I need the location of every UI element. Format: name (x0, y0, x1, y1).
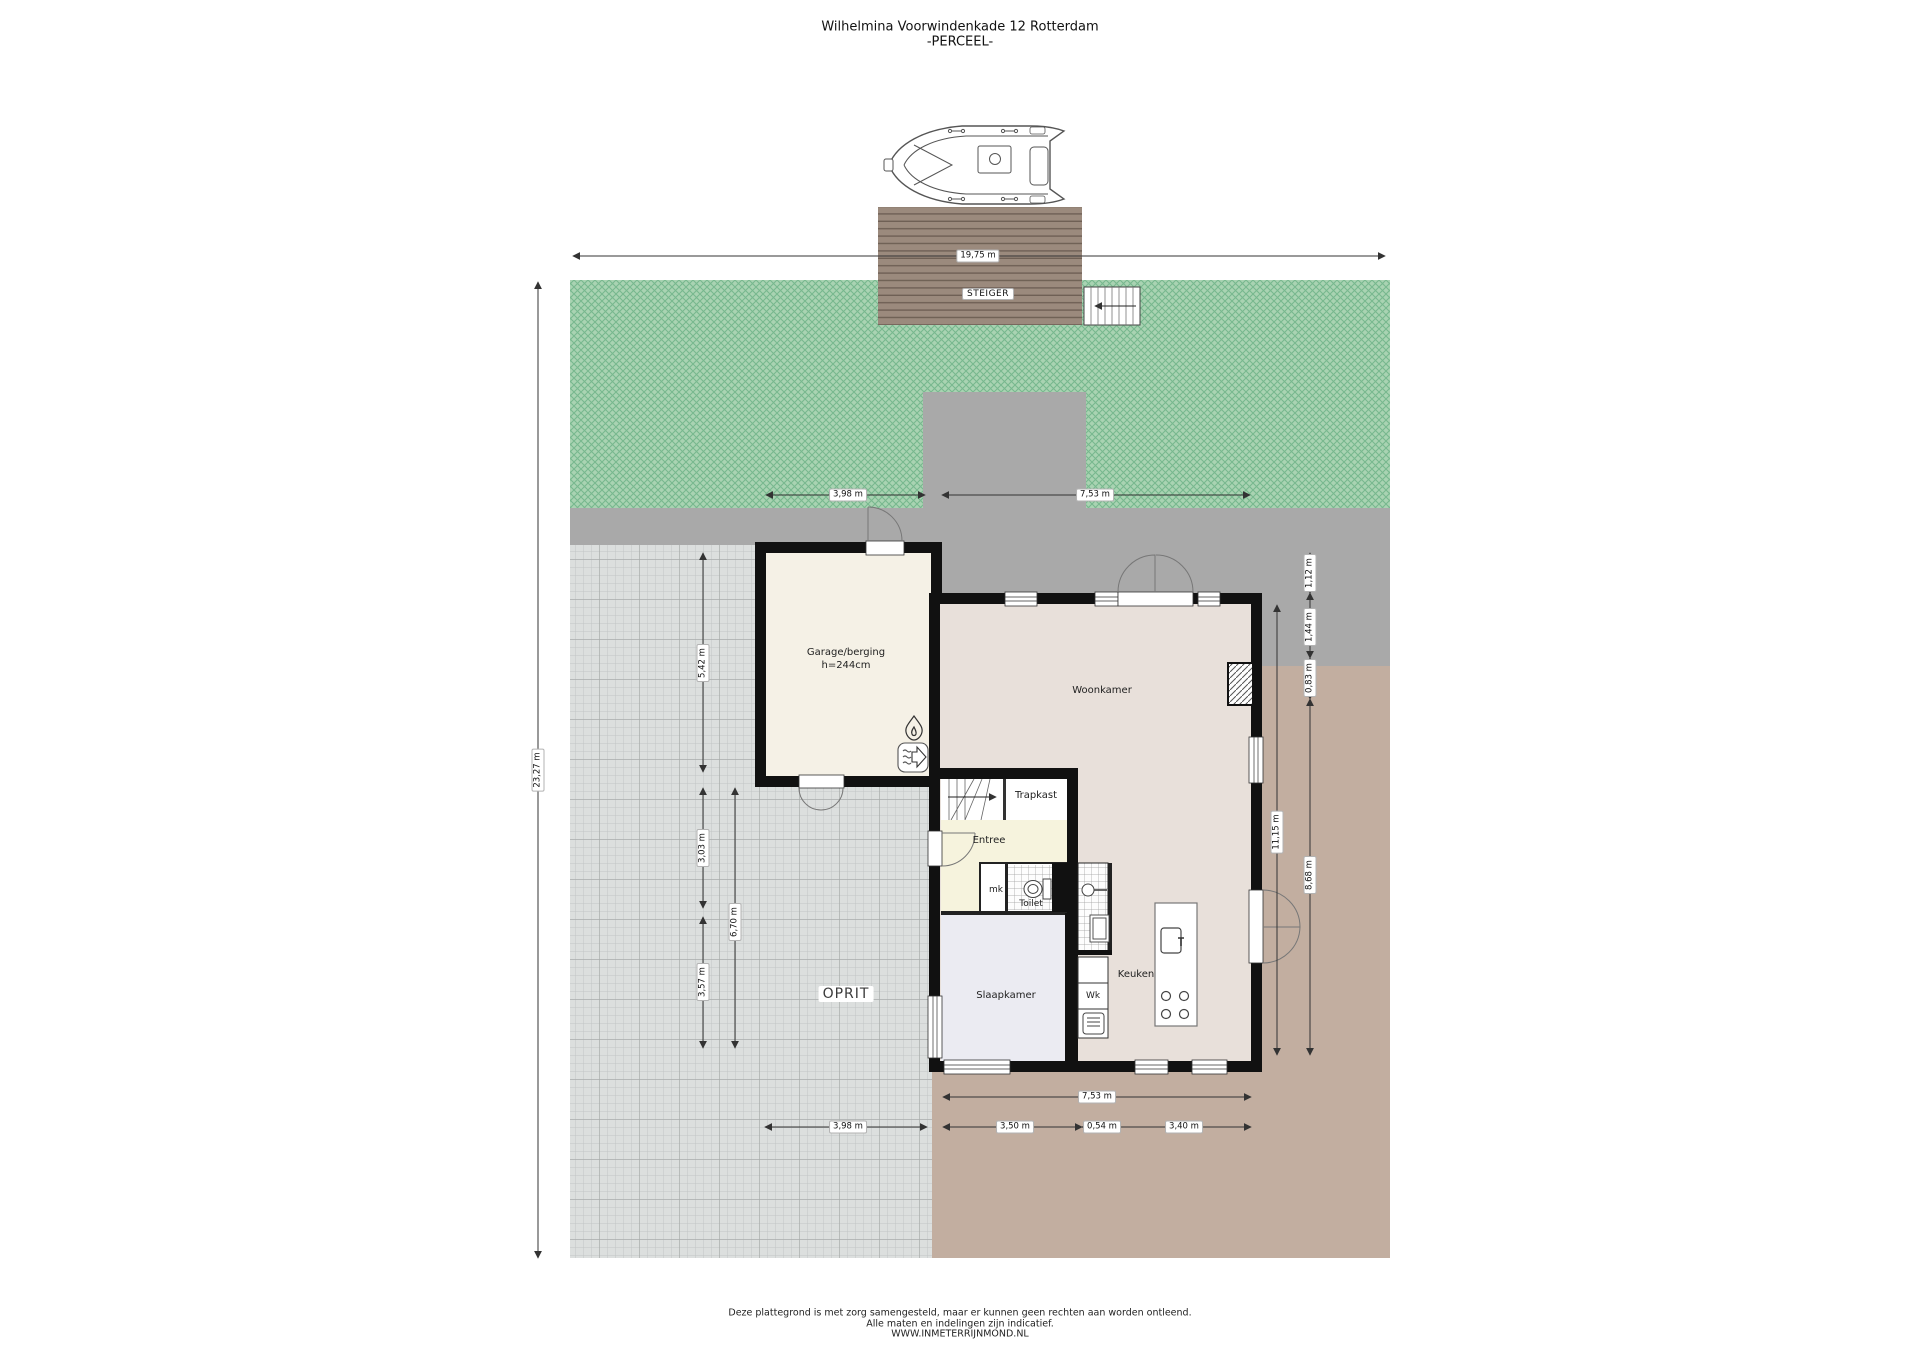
shower-tray (1090, 915, 1109, 942)
steiger-label: STEIGER (962, 288, 1014, 300)
dim-right-3: 0,83 m (1304, 659, 1317, 697)
page-title: Wilhelmina Voorwindenkade 12 Rotterdam (0, 20, 1920, 35)
dim-top-right: 7,53 m (1076, 489, 1114, 502)
kitchen-island (1155, 903, 1197, 1026)
floorplan-canvas: Wilhelmina Voorwindenkade 12 Rotterdam -… (0, 0, 1920, 1358)
dim-bottom-total: 7,53 m (1078, 1091, 1116, 1104)
slaapkamer-floor (941, 915, 1065, 1061)
ventilation-unit-icon (898, 743, 928, 772)
dim-right-1: 1,12 m (1304, 554, 1317, 592)
dim-bottom-1: 3,50 m (996, 1121, 1034, 1134)
dim-right-sum: 8,68 m (1304, 856, 1317, 894)
footer-disclaimer-1: Deze plattegrond is met zorg samengestel… (0, 1308, 1920, 1319)
room-label-woonkamer: Woonkamer (1072, 685, 1132, 697)
chimney (1228, 663, 1253, 705)
room-label-garage-height: h=244cm (821, 660, 870, 672)
boat (884, 126, 1064, 204)
dim-bottom-2: 0,54 m (1083, 1121, 1121, 1134)
washbasin (1082, 884, 1094, 896)
room-label-garage: Garage/berging (807, 647, 885, 659)
dock-stairs (1084, 287, 1140, 325)
dock (878, 207, 1082, 325)
dim-left-garage: 5,42 m (697, 644, 710, 682)
pavement-band (570, 508, 1390, 545)
dim-left-sum: 6,70 m (729, 903, 742, 941)
room-label-trapkast: Trapkast (1015, 790, 1057, 802)
pavement-path (923, 392, 1086, 510)
dim-right-2: 1,44 m (1304, 608, 1317, 646)
oprit-label: OPRIT (819, 986, 874, 1002)
dim-bottom-left: 3,98 m (829, 1121, 867, 1134)
toilet-fixture (1024, 879, 1051, 899)
room-label-mk: mk (989, 884, 1003, 896)
dim-bottom-3: 3,40 m (1165, 1121, 1203, 1134)
dim-total-height: 23,27 m (532, 748, 545, 791)
terrace-right (1262, 666, 1390, 1258)
page-subtitle: -PERCEEL- (0, 35, 1920, 50)
room-label-toilet: Toilet (1019, 898, 1043, 910)
dim-top-left: 3,98 m (829, 489, 867, 502)
room-label-wk: Wk (1086, 990, 1100, 1002)
dim-left-low: 3,57 m (697, 963, 710, 1001)
room-label-keuken: Keuken (1118, 969, 1154, 981)
footer-website: WWW.INMETERRIJNMOND.NL (0, 1329, 1920, 1340)
plan-drawing (0, 0, 1920, 1358)
dim-left-mid: 3,03 m (697, 829, 710, 867)
room-label-entree: Entree (973, 835, 1006, 847)
dim-right-total: 11,15 m (1271, 810, 1284, 853)
room-label-slaapkamer: Slaapkamer (976, 990, 1035, 1002)
dim-total-width: 19,75 m (956, 250, 999, 263)
